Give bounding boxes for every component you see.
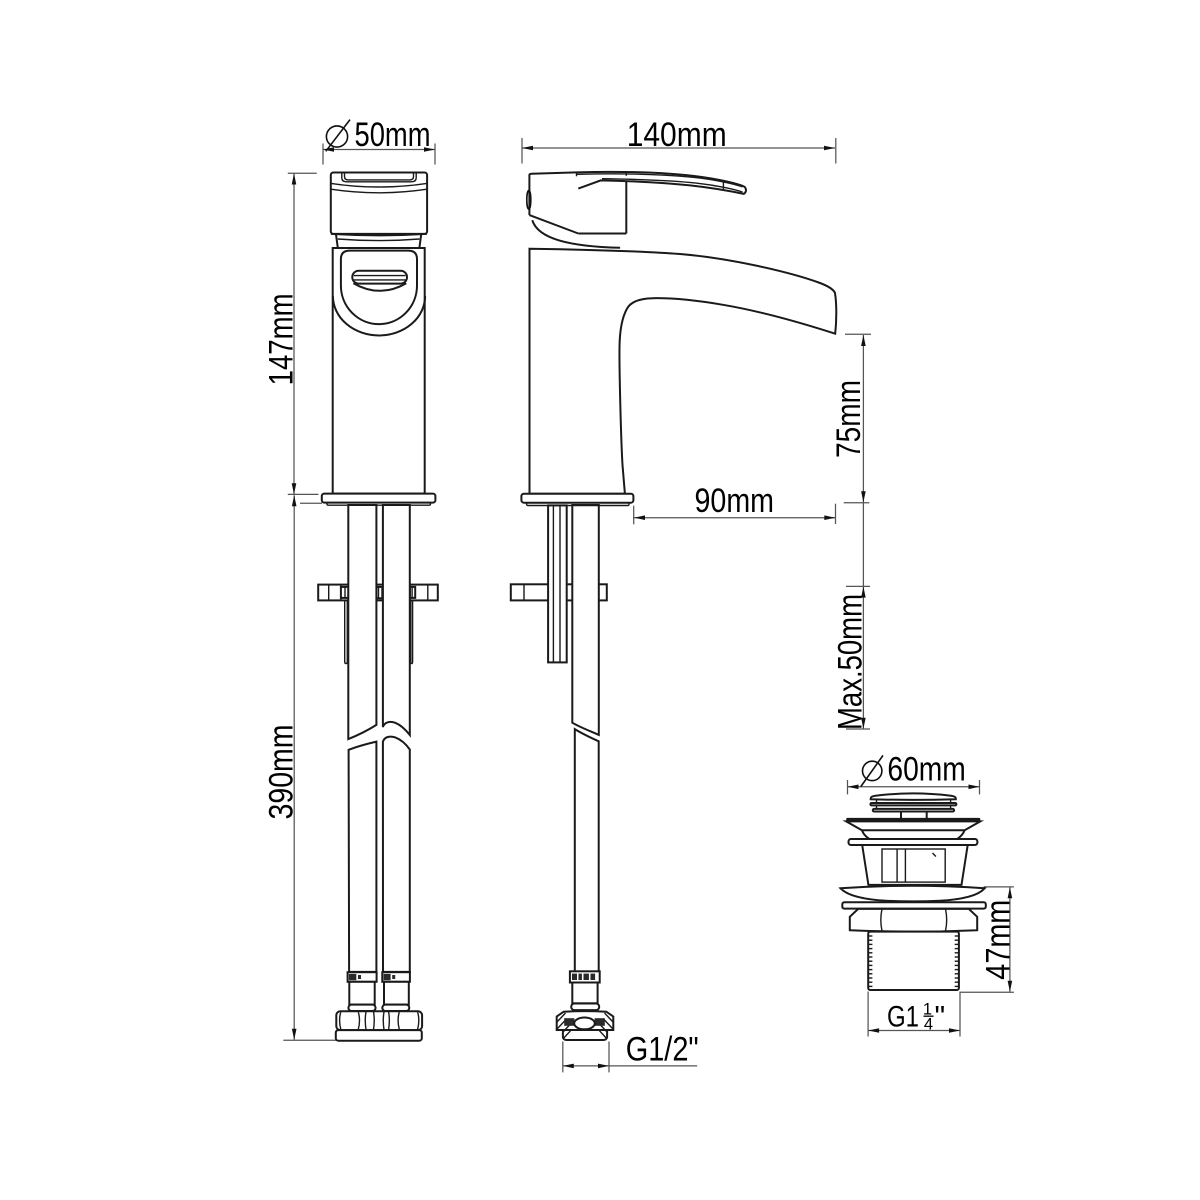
svg-text:G1: G1 <box>887 1001 919 1034</box>
svg-text:4: 4 <box>924 1016 933 1034</box>
svg-text:75mm: 75mm <box>830 380 868 458</box>
svg-text:G1/2": G1/2" <box>626 1031 699 1069</box>
svg-text:90mm: 90mm <box>695 482 775 520</box>
svg-text:47mm: 47mm <box>980 900 1018 980</box>
svg-text:390mm: 390mm <box>262 725 300 820</box>
svg-text:Max.50mm: Max.50mm <box>832 594 870 730</box>
svg-text:50mm: 50mm <box>355 116 431 154</box>
svg-text:60mm: 60mm <box>887 751 965 789</box>
svg-text:": " <box>935 1001 946 1034</box>
svg-text:147mm: 147mm <box>262 293 300 385</box>
svg-text:140mm: 140mm <box>627 116 727 154</box>
